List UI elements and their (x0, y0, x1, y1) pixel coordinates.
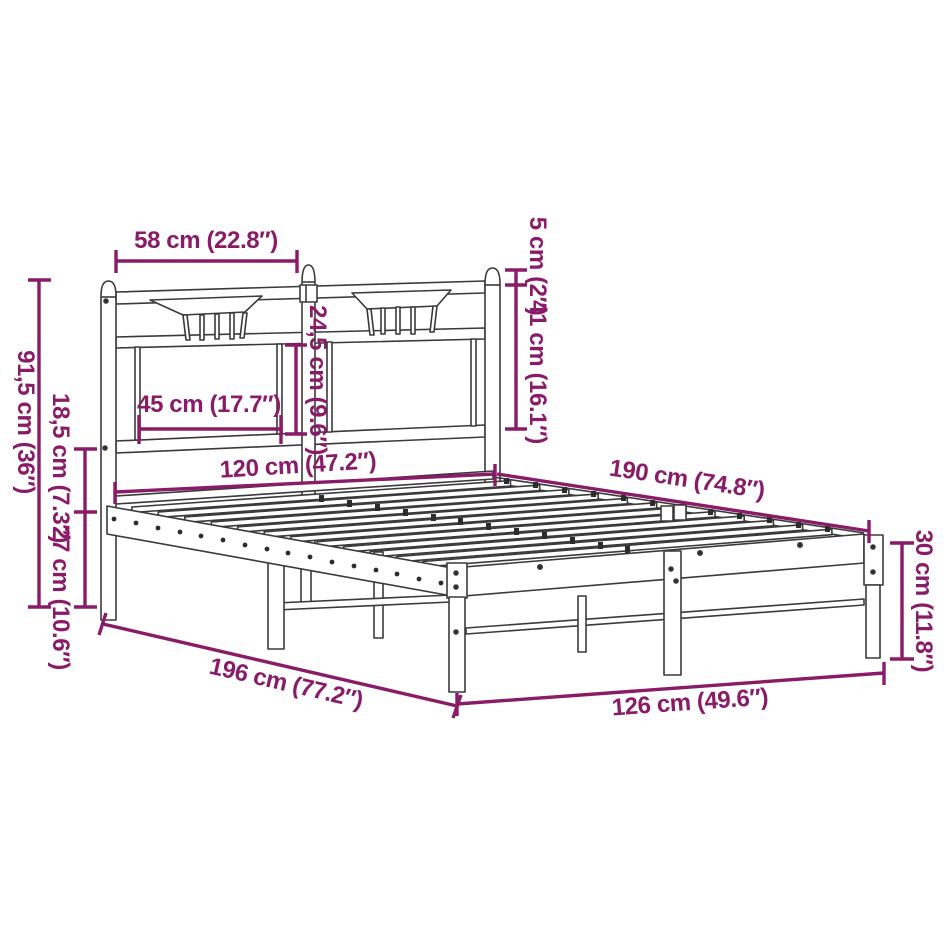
dimension-diagram: 58 cm (22.8″) 5 cm (2″) 41 cm (16.1″) 24… (0, 0, 947, 947)
center-post-bracket (300, 285, 317, 302)
dimension-label-45cm: 45 cm (17.7″) (137, 393, 281, 417)
dimension-label-27cm: 27 cm (10.6″) (48, 526, 72, 670)
dimension-label-30cm: 30 cm (11.8″) (911, 530, 935, 672)
headboard-trapezoid-left (150, 296, 262, 315)
far-foot-corner-bracket (864, 535, 883, 585)
bed-frame-line-drawing (0, 0, 947, 947)
foot-support (578, 596, 586, 652)
dimension-label-18-5cm: 18,5 cm (7.3″) (48, 393, 72, 543)
dim-line-18-5-27 (74, 449, 97, 607)
far-foot-leg (866, 585, 880, 658)
near-foot-leg (449, 597, 465, 692)
dimension-label-58cm: 58 cm (22.8″) (134, 229, 278, 253)
headboard-left-post (101, 281, 116, 620)
dimension-label-41cm: 41 cm (16.1″) (525, 300, 549, 444)
dimension-label-24-5cm: 24,5 cm (9.6″) (305, 305, 329, 455)
rail-bracket (661, 506, 673, 521)
panel-frame-bar (471, 339, 476, 426)
near-foot-corner-bracket (447, 563, 467, 598)
rail-bracket (674, 505, 686, 520)
dimension-label-91-5cm: 91,5 cm (36″) (13, 350, 37, 494)
